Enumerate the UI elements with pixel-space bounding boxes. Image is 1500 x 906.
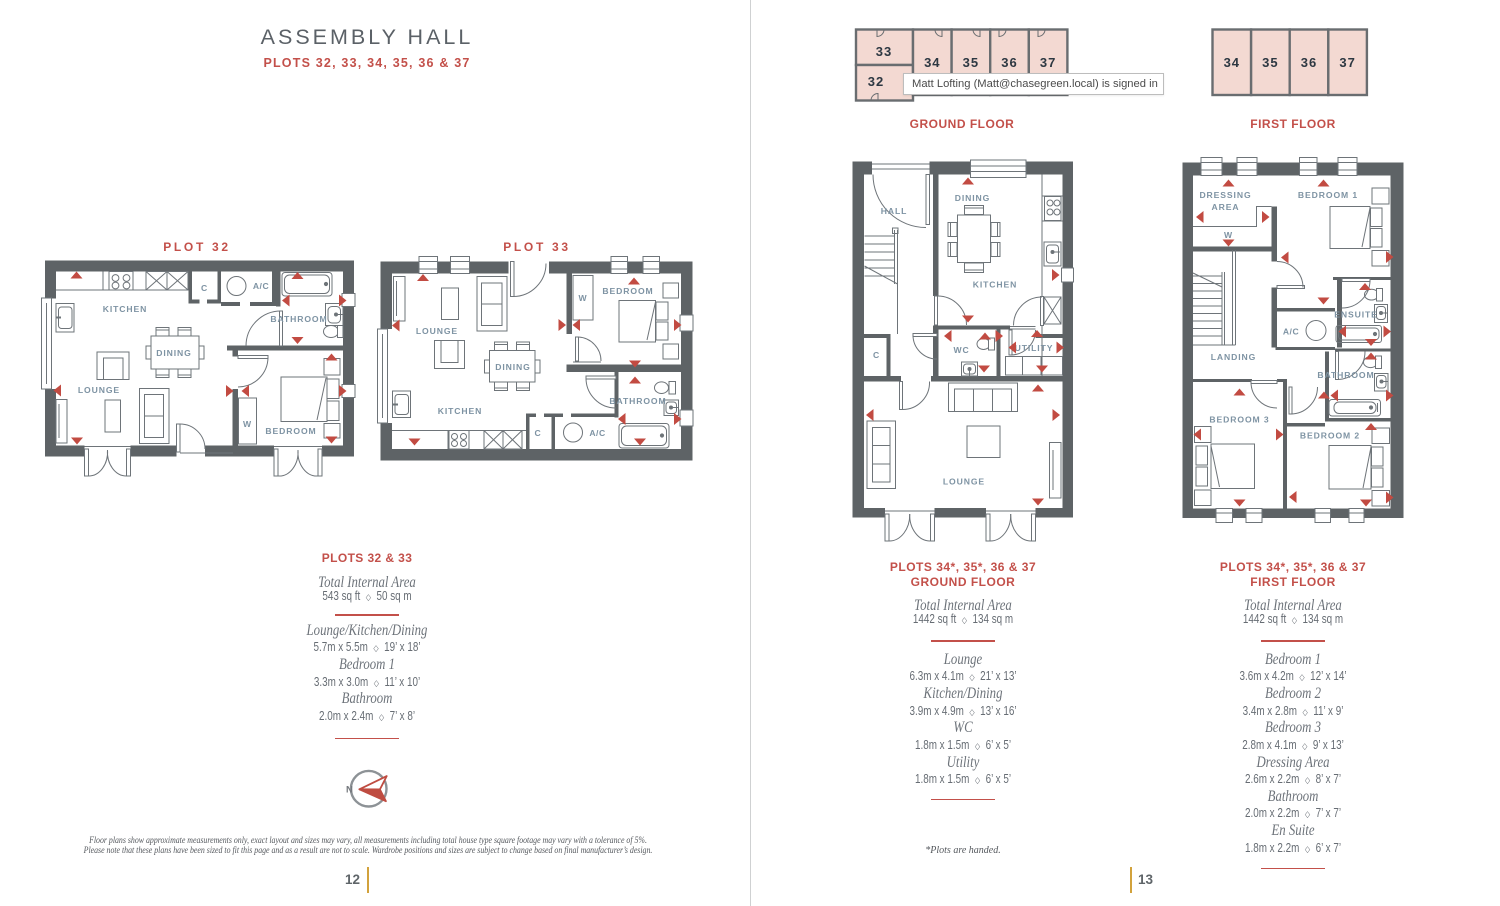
- svg-text:C: C: [534, 428, 541, 438]
- svg-text:A/C: A/C: [1283, 327, 1299, 337]
- svg-text:BATHROOM: BATHROOM: [609, 396, 666, 406]
- svg-text:BEDROOM 1: BEDROOM 1: [1298, 190, 1358, 200]
- svg-text:37: 37: [1040, 55, 1056, 70]
- svg-text:W: W: [578, 293, 587, 303]
- svg-text:LANDING: LANDING: [1211, 352, 1256, 362]
- svg-text:LOUNGE: LOUNGE: [943, 477, 985, 487]
- svg-text:W: W: [1224, 230, 1233, 240]
- svg-text:BEDROOM: BEDROOM: [265, 426, 316, 436]
- svg-text:BATHROOM: BATHROOM: [1317, 370, 1374, 380]
- svg-text:34: 34: [924, 55, 940, 70]
- svg-text:AREA: AREA: [1212, 202, 1240, 212]
- svg-text:36: 36: [1001, 55, 1017, 70]
- svg-text:DINING: DINING: [156, 348, 191, 358]
- svg-text:C: C: [201, 283, 208, 293]
- svg-text:KITCHEN: KITCHEN: [973, 280, 1018, 290]
- svg-text:33: 33: [876, 44, 892, 59]
- svg-text:N: N: [346, 785, 353, 796]
- svg-text:32: 32: [868, 74, 884, 89]
- svg-text:A/C: A/C: [253, 281, 269, 291]
- svg-text:37: 37: [1339, 55, 1355, 70]
- svg-text:BATHROOM: BATHROOM: [270, 314, 327, 324]
- svg-text:LOUNGE: LOUNGE: [416, 326, 458, 336]
- svg-text:BEDROOM 3: BEDROOM 3: [1209, 415, 1269, 425]
- svg-text:DRESSING: DRESSING: [1199, 190, 1251, 200]
- svg-text:WC: WC: [953, 345, 969, 355]
- svg-text:DINING: DINING: [495, 362, 530, 372]
- svg-text:KITCHEN: KITCHEN: [438, 406, 483, 416]
- svg-text:DINING: DINING: [955, 193, 990, 203]
- svg-text:LOUNGE: LOUNGE: [78, 385, 120, 395]
- svg-text:W: W: [243, 419, 252, 429]
- svg-text:ENSUITE: ENSUITE: [1334, 310, 1378, 320]
- svg-text:HALL: HALL: [881, 206, 908, 216]
- svg-text:35: 35: [963, 55, 979, 70]
- svg-text:36: 36: [1301, 55, 1317, 70]
- svg-text:UTILITY: UTILITY: [1015, 343, 1054, 353]
- svg-text:C: C: [873, 350, 880, 360]
- svg-text:35: 35: [1262, 55, 1278, 70]
- svg-text:BEDROOM 2: BEDROOM 2: [1300, 431, 1360, 441]
- svg-text:A/C: A/C: [589, 428, 605, 438]
- svg-text:BEDROOM: BEDROOM: [602, 286, 653, 296]
- svg-text:34: 34: [1224, 55, 1240, 70]
- svg-text:KITCHEN: KITCHEN: [103, 304, 148, 314]
